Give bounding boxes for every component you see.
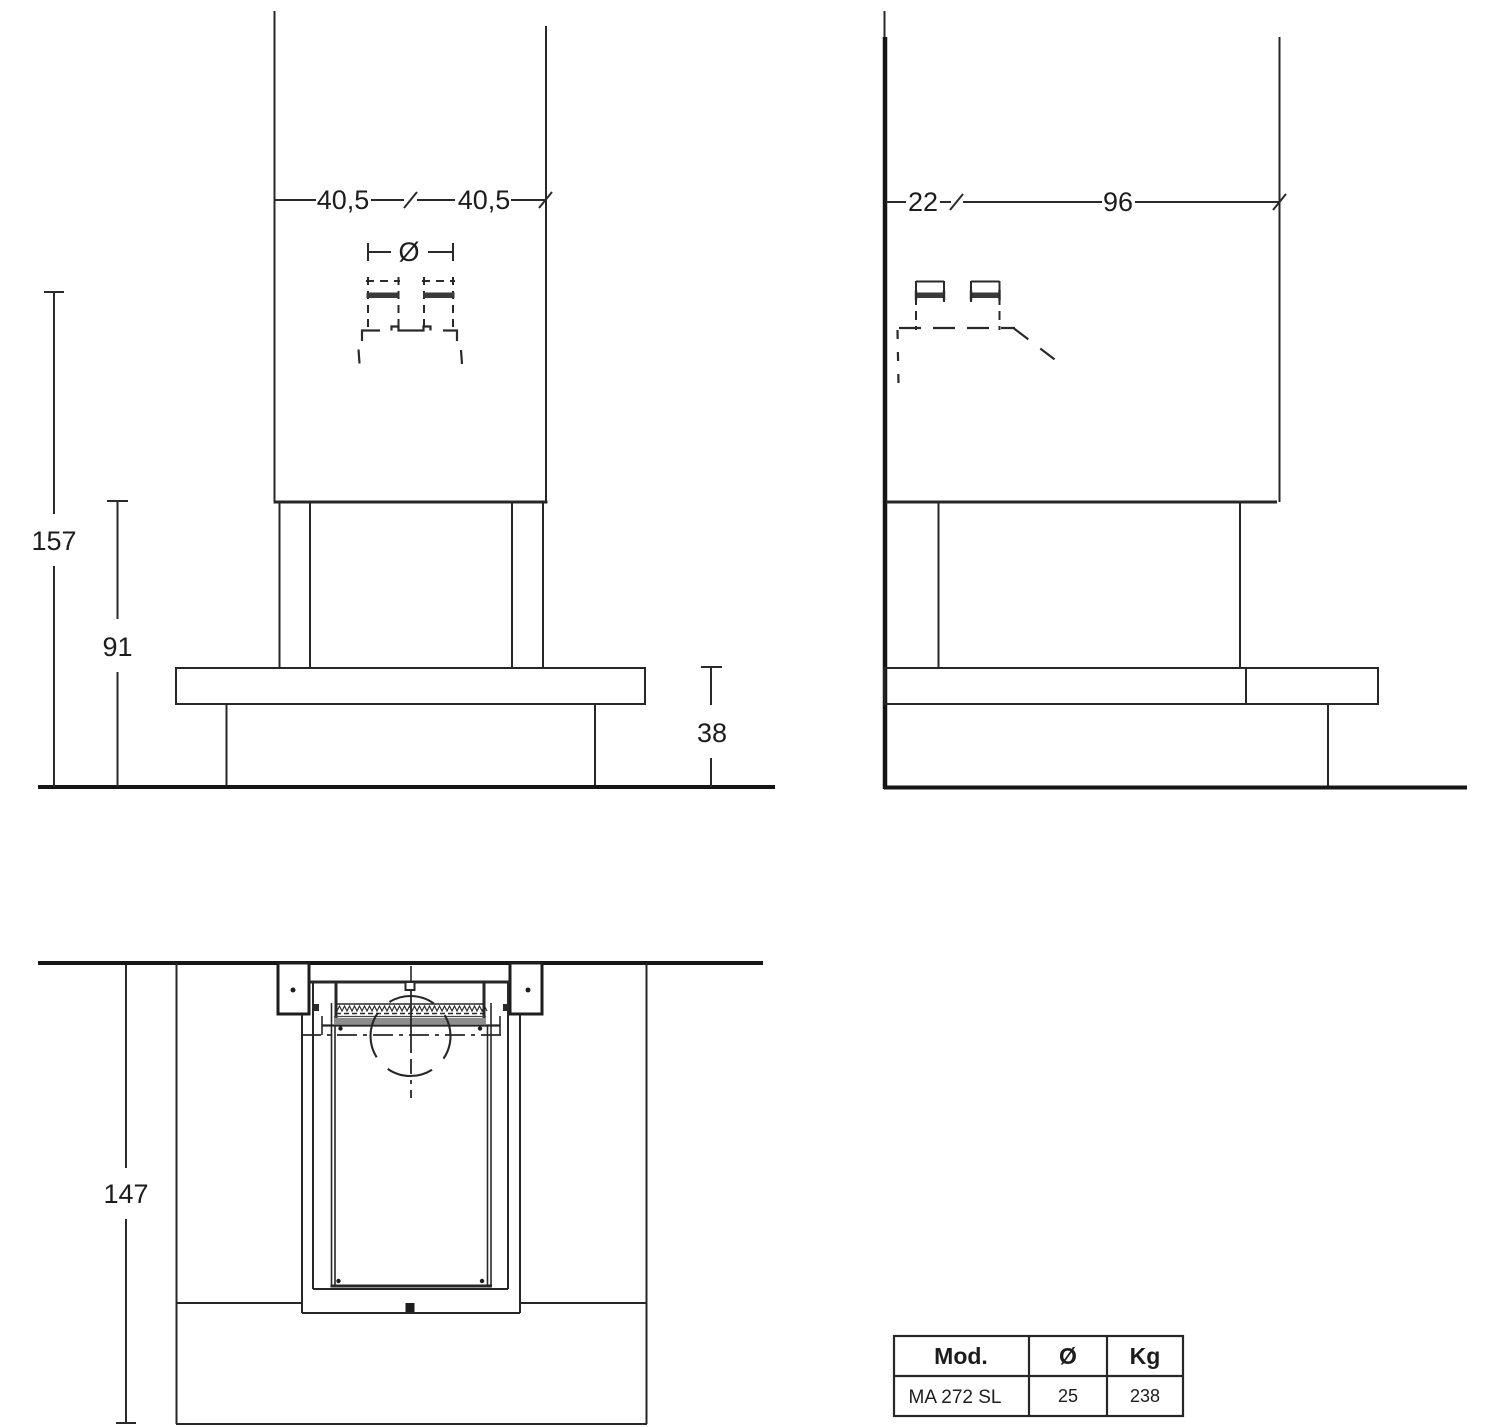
svg-text:Ø: Ø [1059, 1343, 1077, 1369]
svg-text:238: 238 [1130, 1386, 1160, 1406]
svg-text:96: 96 [1103, 187, 1133, 217]
svg-text:91: 91 [102, 632, 132, 662]
svg-text:40,5: 40,5 [317, 185, 370, 215]
svg-text:22: 22 [908, 187, 938, 217]
svg-text:40,5: 40,5 [458, 185, 511, 215]
svg-text:157: 157 [31, 526, 76, 556]
svg-text:Kg: Kg [1130, 1343, 1161, 1369]
svg-text:25: 25 [1058, 1386, 1078, 1406]
svg-text:147: 147 [103, 1179, 148, 1209]
svg-text:MA 272 SL: MA 272 SL [909, 1387, 1002, 1408]
svg-text:Mod.: Mod. [934, 1343, 988, 1369]
svg-text:38: 38 [697, 718, 727, 748]
svg-text:Ø: Ø [398, 237, 419, 267]
